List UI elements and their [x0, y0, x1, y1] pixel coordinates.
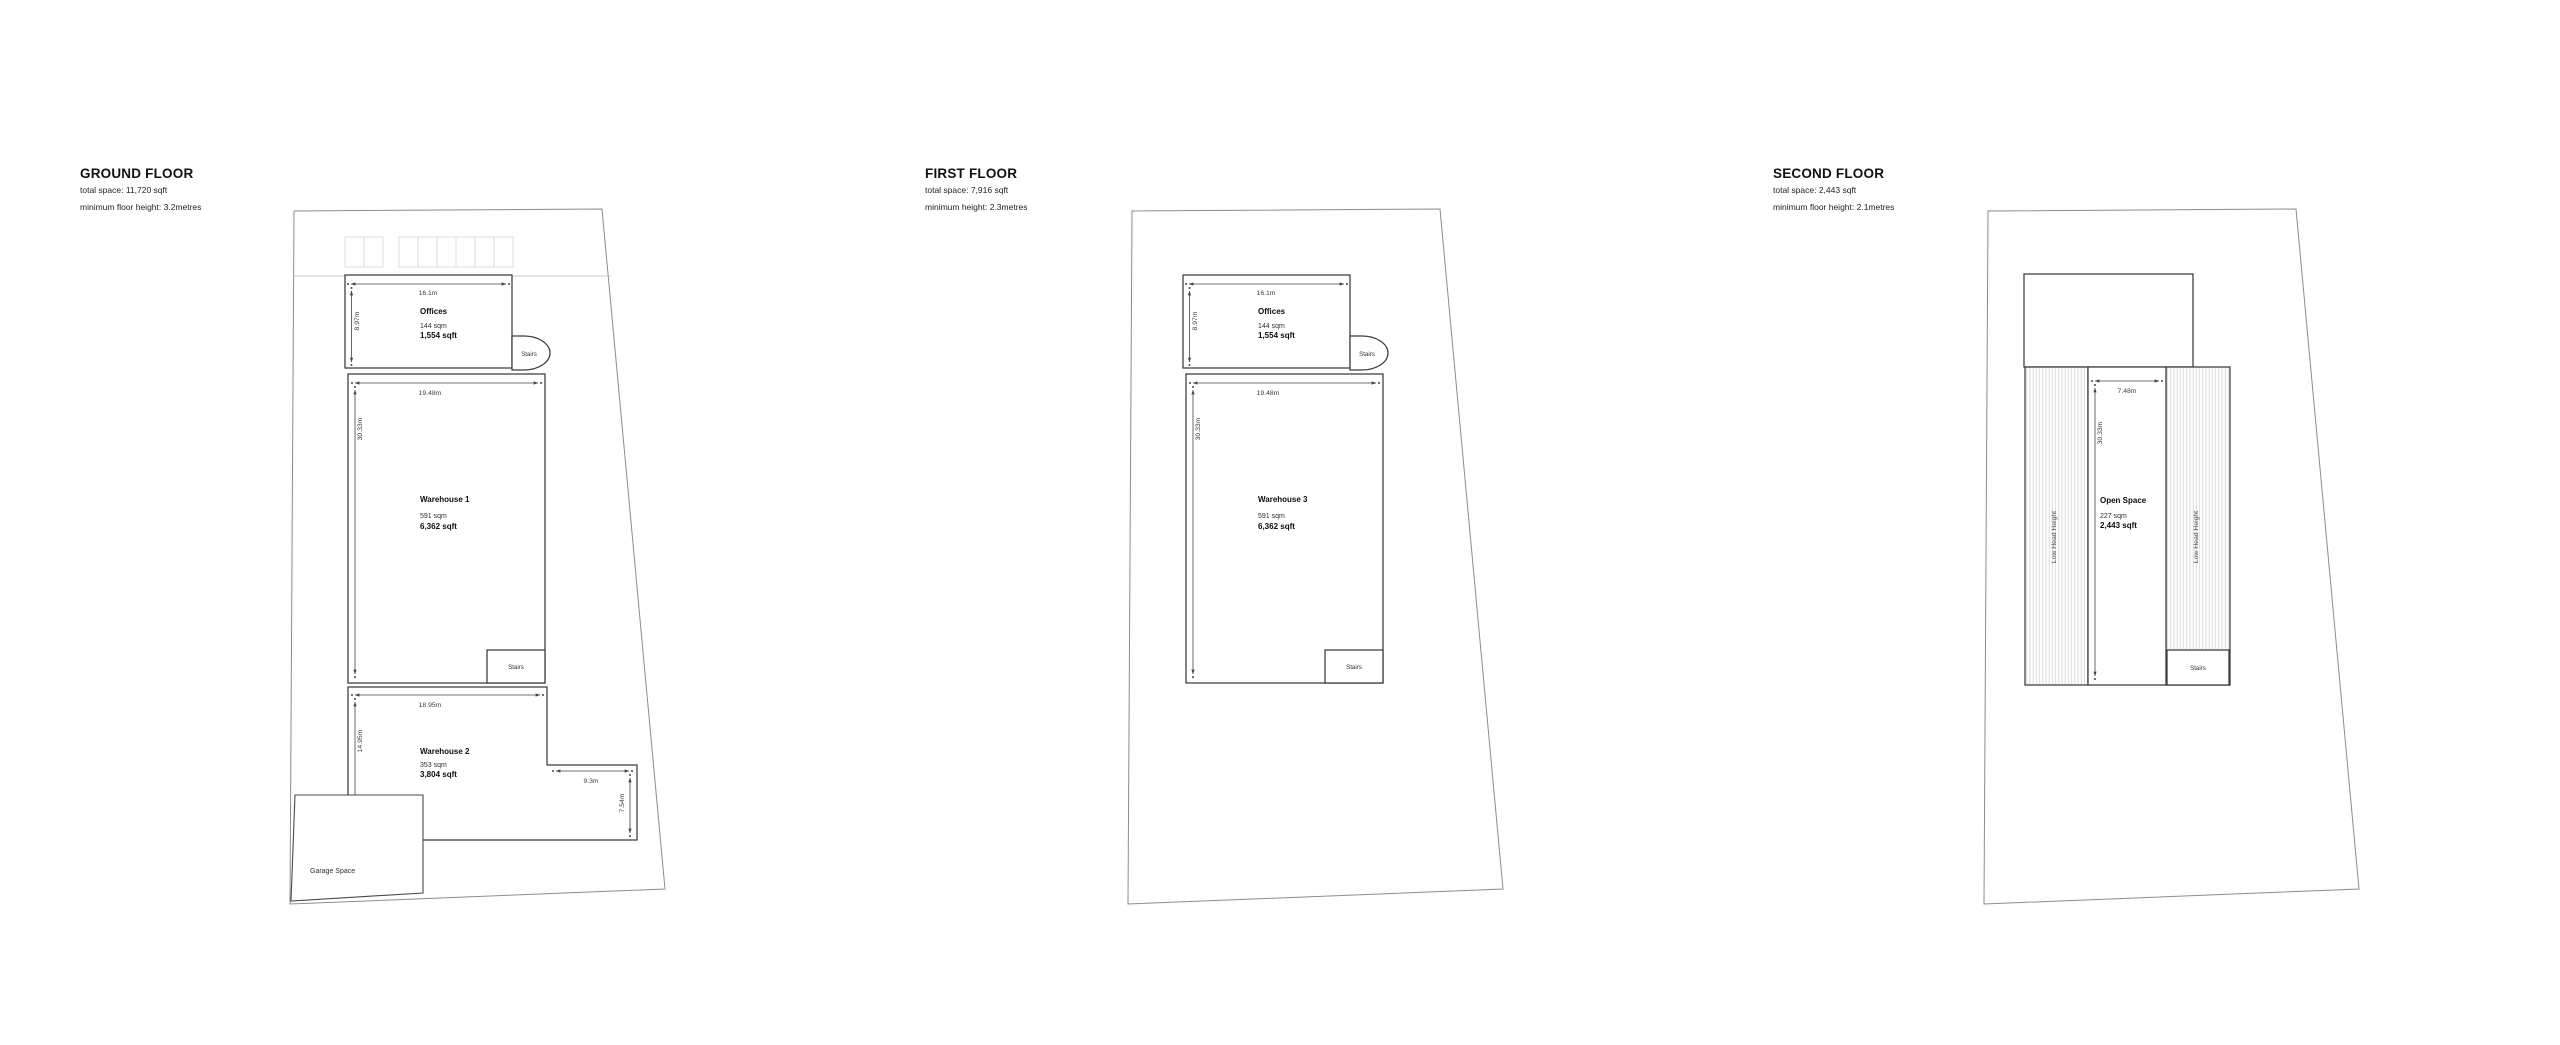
low-head-left-label: Low Head Height: [2051, 511, 2058, 563]
room-offices-sqm: 144 sqm: [420, 323, 447, 330]
stairs-second-label: Stairs: [2190, 665, 2206, 672]
floor-first-plan: 16.1m 8.97m Offices 144 sqm 1,554 sqft S…: [1118, 205, 1528, 935]
stairs-warehouse3-label: Stairs: [1346, 664, 1362, 671]
room-garage-label: Garage Space: [310, 868, 355, 875]
floor-ground-plan: 16.1m 8.97m Offices 144 sqm 1,554 sqft S…: [280, 205, 690, 935]
room-open-space-sqm: 227 sqm: [2100, 513, 2127, 520]
dim-offices-width: 16.1m: [1257, 290, 1276, 297]
room-warehouse1-name: Warehouse 1: [420, 495, 470, 504]
floor-min-height: minimum height: 2.3metres: [925, 202, 1028, 212]
room-offices-name: Offices: [1258, 307, 1286, 316]
floor-ground-header: GROUND FLOOR total space: 11,720 sqft mi…: [80, 166, 201, 219]
floor-first-header: FIRST FLOOR total space: 7,916 sqft mini…: [925, 166, 1028, 219]
dim-warehouse2-notch-depth: 7.54m: [619, 793, 626, 812]
room-offices: [1183, 275, 1350, 368]
room-warehouse3-sqft: 6,362 sqft: [1258, 522, 1295, 531]
floor-second-plan: Low Head Height Low Head Height 7.48m 30…: [1974, 205, 2384, 935]
dim-open-space-width: 7.48m: [2118, 388, 2137, 395]
room-warehouse3-name: Warehouse 3: [1258, 495, 1308, 504]
floor-title: FIRST FLOOR: [925, 166, 1028, 181]
room-warehouse2-name: Warehouse 2: [420, 747, 470, 756]
room-open-space-name: Open Space: [2100, 496, 2147, 505]
room-offices-name: Offices: [420, 307, 448, 316]
room-warehouse1-sqm: 591 sqm: [420, 513, 447, 520]
low-head-right-label: Low Head Height: [2193, 511, 2200, 563]
room-warehouse3-sqm: 591 sqm: [1258, 513, 1285, 520]
dim-offices-width: 16.1m: [419, 290, 438, 297]
floor-title: GROUND FLOOR: [80, 166, 201, 181]
stairs-warehouse1-label: Stairs: [508, 664, 524, 671]
room-open-space-sqft: 2,443 sqft: [2100, 521, 2137, 530]
floorplan-sheet: { "floors": [ { "title": "GROUND FLOOR",…: [0, 0, 2560, 1045]
room-warehouse2-sqft: 3,804 sqft: [420, 770, 457, 779]
floor-second-header: SECOND FLOOR total space: 2,443 sqft min…: [1773, 166, 1894, 219]
dim-warehouse3-width: 19.48m: [1257, 390, 1280, 397]
floor-total-space: total space: 11,720 sqft: [80, 185, 201, 195]
floor-title: SECOND FLOOR: [1773, 166, 1894, 181]
dim-warehouse1-depth: 30.33m: [357, 417, 364, 440]
stairs-offices-label: Stairs: [1359, 351, 1375, 358]
room-warehouse1-sqft: 6,362 sqft: [420, 522, 457, 531]
dim-open-space-depth: 30.33m: [2097, 421, 2104, 444]
floor-total-space: total space: 2,443 sqft: [1773, 185, 1894, 195]
stairs-offices-label: Stairs: [521, 351, 537, 358]
dim-warehouse2-notch-width: 9.3m: [583, 778, 598, 785]
room-warehouse2-sqm: 353 sqm: [420, 762, 447, 769]
dim-offices-depth: 8.97m: [1192, 311, 1199, 330]
floor-total-space: total space: 7,916 sqft: [925, 185, 1028, 195]
room-offices: [345, 275, 512, 368]
roof-void-outline: [2024, 274, 2193, 367]
dim-warehouse2-depth: 14.95m: [357, 729, 364, 752]
dim-warehouse2-width: 18.95m: [419, 702, 442, 709]
room-offices-sqm: 144 sqm: [1258, 323, 1285, 330]
floor-min-height: minimum floor height: 3.2metres: [80, 202, 201, 212]
dim-warehouse3-depth: 30.33m: [1195, 417, 1202, 440]
dim-offices-depth: 8.97m: [354, 311, 361, 330]
dim-warehouse1-width: 19.48m: [419, 390, 442, 397]
floor-min-height: minimum floor height: 2.1metres: [1773, 202, 1894, 212]
room-garage: [291, 795, 423, 901]
room-offices-sqft: 1,554 sqft: [1258, 331, 1295, 340]
room-offices-sqft: 1,554 sqft: [420, 331, 457, 340]
